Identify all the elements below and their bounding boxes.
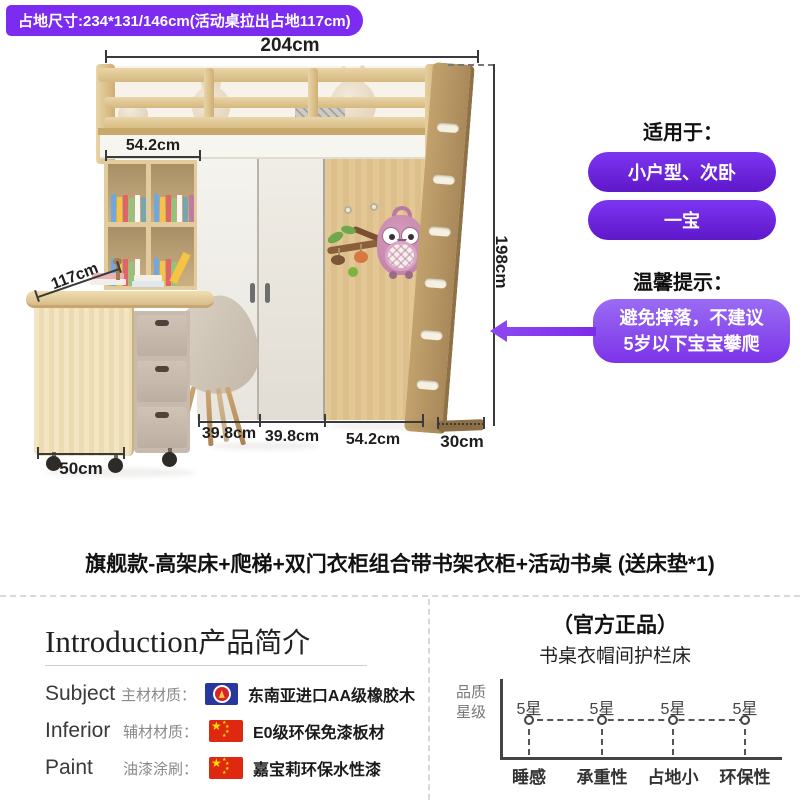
dim-tick bbox=[105, 150, 107, 161]
dim-label-cabinet-width: 50cm bbox=[52, 459, 110, 479]
dim-tick bbox=[37, 447, 39, 459]
chart-dropline bbox=[744, 729, 746, 755]
dim-line bbox=[106, 156, 200, 158]
fox-decor bbox=[354, 251, 368, 263]
desk-book bbox=[134, 275, 162, 281]
introduction-heading: Introduction产品简介 bbox=[45, 621, 310, 661]
suit-title: 适用于： bbox=[600, 116, 766, 145]
chart-dropline bbox=[672, 729, 674, 755]
china-flag-icon: ★★★★★ bbox=[209, 757, 243, 779]
dim-label-top-width: 204cm bbox=[250, 35, 330, 57]
chart-dropline bbox=[601, 729, 603, 755]
dim-label-door-right: 39.8cm bbox=[260, 428, 324, 446]
chart-x-axis bbox=[500, 757, 782, 760]
introduction-panel: Introduction产品简介 Subject 主材材质： 东南亚进口AA级橡… bbox=[0, 599, 428, 800]
chart-point bbox=[668, 715, 678, 725]
chart-dashed-connector bbox=[527, 719, 745, 721]
tip-line-1: 避免摔落，不建议 bbox=[620, 305, 764, 331]
china-flag-icon: ★★★★★ bbox=[209, 720, 243, 742]
bed-platform-edge bbox=[98, 128, 446, 135]
desk-cabinet bbox=[34, 308, 134, 456]
hook-icon bbox=[344, 206, 352, 214]
product-title-bar: 旗舰款-高架床+爬梯+双门衣柜组合带书架衣柜+活动书桌 (送床垫*1) bbox=[0, 530, 800, 597]
chart-category: 环保性 bbox=[713, 763, 777, 788]
spec-value: E0级环保免漆板材 bbox=[253, 719, 385, 743]
caster-wheel bbox=[162, 452, 177, 467]
hedgehog-decor bbox=[331, 255, 345, 265]
spec-zh-label: 油漆涂刷： bbox=[123, 758, 209, 779]
axis-label-line2: 星级 bbox=[456, 703, 486, 723]
tip-line-2: 5岁以下宝宝攀爬 bbox=[623, 331, 759, 357]
dim-label-ladder-depth: 30cm bbox=[434, 432, 490, 452]
guardrail-mid bbox=[104, 97, 438, 108]
dim-label-panel-width: 54.2cm bbox=[326, 431, 420, 449]
spec-en-label: Paint bbox=[45, 756, 123, 780]
spec-row-paint: Paint 油漆涂刷： ★★★★★ 嘉宝莉环保水性漆 bbox=[45, 755, 415, 781]
door-handle bbox=[250, 283, 255, 303]
dim-line bbox=[38, 453, 124, 455]
official-badge: （官方正品） bbox=[430, 609, 800, 639]
guardrail-top bbox=[98, 68, 442, 82]
bookshelf-cell bbox=[108, 164, 146, 222]
product-detail-page: 占地尺寸:234*131/146cm(活动桌拉出占地117cm) bbox=[0, 0, 800, 800]
spec-row-inferior: Inferior 辅材材质： ★★★★★ E0级环保免漆板材 bbox=[45, 718, 415, 744]
suit-pill-1: 小户型、次卧 bbox=[588, 152, 776, 192]
left-arrow-shaft bbox=[506, 327, 596, 336]
asean-flag-icon bbox=[205, 683, 238, 705]
quality-panel: （官方正品） 书桌衣帽间护栏床 品质 星级 5星 5星 5星 5星 睡感 承重性 bbox=[428, 599, 800, 800]
product-image: 占地尺寸:234*131/146cm(活动桌拉出占地117cm) bbox=[0, 0, 800, 530]
dim-tick bbox=[437, 417, 439, 429]
dim-dot bbox=[438, 423, 484, 425]
desk-book bbox=[132, 281, 164, 287]
spec-row-subject: Subject 主材材质： 东南亚进口AA级橡胶木 bbox=[45, 681, 415, 707]
footprint-badge: 占地尺寸:234*131/146cm(活动桌拉出占地117cm) bbox=[6, 5, 363, 36]
chart-category: 承重性 bbox=[570, 763, 634, 788]
shelf-divider bbox=[108, 222, 194, 227]
dim-tick bbox=[105, 50, 107, 63]
suit-pill-2: 一宝 bbox=[588, 200, 776, 240]
spec-section: Introduction产品简介 Subject 主材材质： 东南亚进口AA级橡… bbox=[0, 599, 800, 800]
dim-tick bbox=[477, 50, 479, 63]
product-title: 旗舰款-高架床+爬梯+双门衣柜组合带书架衣柜+活动书桌 (送床垫*1) bbox=[85, 548, 714, 578]
desk-book bbox=[90, 279, 126, 285]
tip-title: 温馨提示： bbox=[600, 266, 766, 295]
left-arrow-icon bbox=[490, 320, 507, 342]
divider-line bbox=[45, 665, 367, 666]
warning-tip-box: 避免摔落，不建议 5岁以下宝宝攀爬 bbox=[593, 299, 790, 363]
quality-subtitle: 书桌衣帽间护栏床 bbox=[430, 641, 800, 668]
axis-label-line1: 品质 bbox=[456, 683, 486, 703]
dim-tick bbox=[422, 414, 424, 427]
spec-zh-label: 辅材材质： bbox=[123, 721, 209, 742]
chart-dropline bbox=[528, 729, 530, 755]
chart-category: 占地小 bbox=[641, 763, 705, 788]
dim-dash bbox=[448, 64, 494, 66]
dim-tick bbox=[123, 447, 125, 459]
dim-line bbox=[199, 421, 423, 423]
dim-label-height: 198cm bbox=[491, 231, 511, 293]
spec-value: 嘉宝莉环保水性漆 bbox=[253, 756, 381, 780]
spec-en-label: Subject bbox=[45, 682, 121, 706]
dim-label-shelf-width: 54.2cm bbox=[114, 137, 192, 155]
chart-point bbox=[597, 715, 607, 725]
spec-zh-label: 主材材质： bbox=[121, 684, 205, 705]
introduction-heading-en: Introduction bbox=[45, 624, 198, 659]
hook-icon bbox=[370, 203, 378, 211]
dim-label-door-left: 39.8cm bbox=[198, 425, 260, 443]
chart-y-axis bbox=[500, 679, 503, 759]
spec-en-label: Inferior bbox=[45, 719, 123, 743]
introduction-heading-zh: 产品简介 bbox=[198, 628, 310, 659]
dim-tick bbox=[483, 417, 485, 429]
apple-decor bbox=[348, 267, 358, 277]
chart-point bbox=[740, 715, 750, 725]
dim-tick bbox=[324, 414, 326, 427]
chart-point bbox=[524, 715, 534, 725]
chart-category: 睡感 bbox=[497, 763, 561, 788]
dim-tick bbox=[199, 150, 201, 161]
door-handle bbox=[265, 283, 270, 303]
dim-line bbox=[106, 56, 478, 58]
bookshelf-cell bbox=[151, 164, 194, 222]
spec-value: 东南亚进口AA级橡胶木 bbox=[248, 682, 415, 706]
quality-axis-label: 品质 星级 bbox=[456, 683, 486, 723]
drawer-unit bbox=[134, 311, 190, 453]
